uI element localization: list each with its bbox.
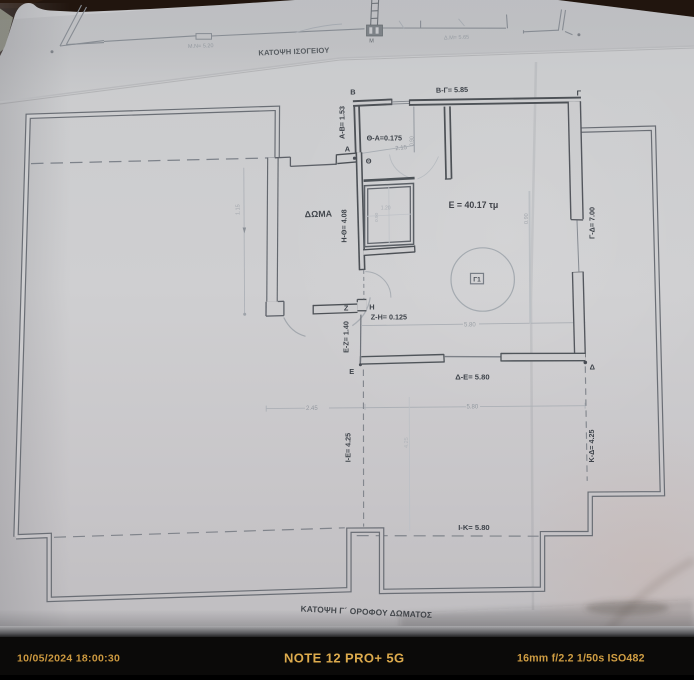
svg-text:4.25: 4.25: [404, 437, 410, 448]
svg-text:Μ: Μ: [369, 39, 374, 45]
svg-text:1.20: 1.20: [381, 206, 391, 212]
svg-text:Γ1: Γ1: [473, 277, 481, 284]
svg-text:5.80: 5.80: [467, 404, 479, 410]
svg-text:Ε: Ε: [349, 367, 354, 376]
svg-text:Β: Β: [350, 88, 355, 97]
svg-text:0.90: 0.90: [374, 212, 380, 222]
svg-text:1.15: 1.15: [236, 204, 242, 215]
svg-text:0.90: 0.90: [524, 213, 530, 224]
svg-text:Θ-Α=0.175: Θ-Α=0.175: [367, 134, 402, 143]
svg-text:Μ.Ν= 5.20: Μ.Ν= 5.20: [188, 43, 214, 50]
svg-text:2.15: 2.15: [395, 145, 408, 152]
svg-text:10/05/2024 18:00:30: 10/05/2024 18:00:30: [17, 653, 120, 665]
svg-text:5.80: 5.80: [464, 322, 476, 328]
svg-text:Ζ: Ζ: [344, 303, 349, 312]
svg-text:Θ: Θ: [366, 156, 372, 165]
svg-text:2.45: 2.45: [306, 406, 318, 412]
svg-text:Ι-Ε= 4.25: Ι-Ε= 4.25: [344, 433, 353, 462]
svg-text:Δ.Μ= 5.65: Δ.Μ= 5.65: [444, 35, 469, 42]
svg-text:ΔΩΜΑ: ΔΩΜΑ: [305, 209, 333, 220]
svg-text:Ε-Ζ= 1.40: Ε-Ζ= 1.40: [342, 321, 351, 353]
svg-text:Κ-Δ= 4.25: Κ-Δ= 4.25: [587, 430, 596, 463]
svg-text:Η: Η: [369, 303, 374, 312]
svg-text:Α-Β= 1.53: Α-Β= 1.53: [338, 106, 347, 139]
svg-text:16mm f/2.2 1/50s ISO482: 16mm f/2.2 1/50s ISO482: [517, 653, 645, 665]
svg-text:Ι-Κ= 5.80: Ι-Κ= 5.80: [458, 523, 489, 532]
svg-text:Δ: Δ: [590, 362, 596, 371]
svg-text:Η-Θ= 4.08: Η-Θ= 4.08: [339, 209, 348, 242]
svg-text:Γ: Γ: [577, 89, 582, 98]
svg-text:Β-Γ= 5.85: Β-Γ= 5.85: [436, 85, 468, 95]
svg-text:Ε = 40.17 τμ: Ε = 40.17 τμ: [449, 200, 499, 210]
svg-text:Δ-Ε= 5.80: Δ-Ε= 5.80: [455, 373, 489, 382]
svg-text:Α: Α: [345, 144, 351, 153]
svg-text:Ζ-Η= 0.125: Ζ-Η= 0.125: [371, 313, 407, 322]
svg-text:Γ-Δ= 7.00: Γ-Δ= 7.00: [587, 207, 596, 239]
svg-text:NOTE 12 PRO+ 5G: NOTE 12 PRO+ 5G: [284, 651, 405, 666]
